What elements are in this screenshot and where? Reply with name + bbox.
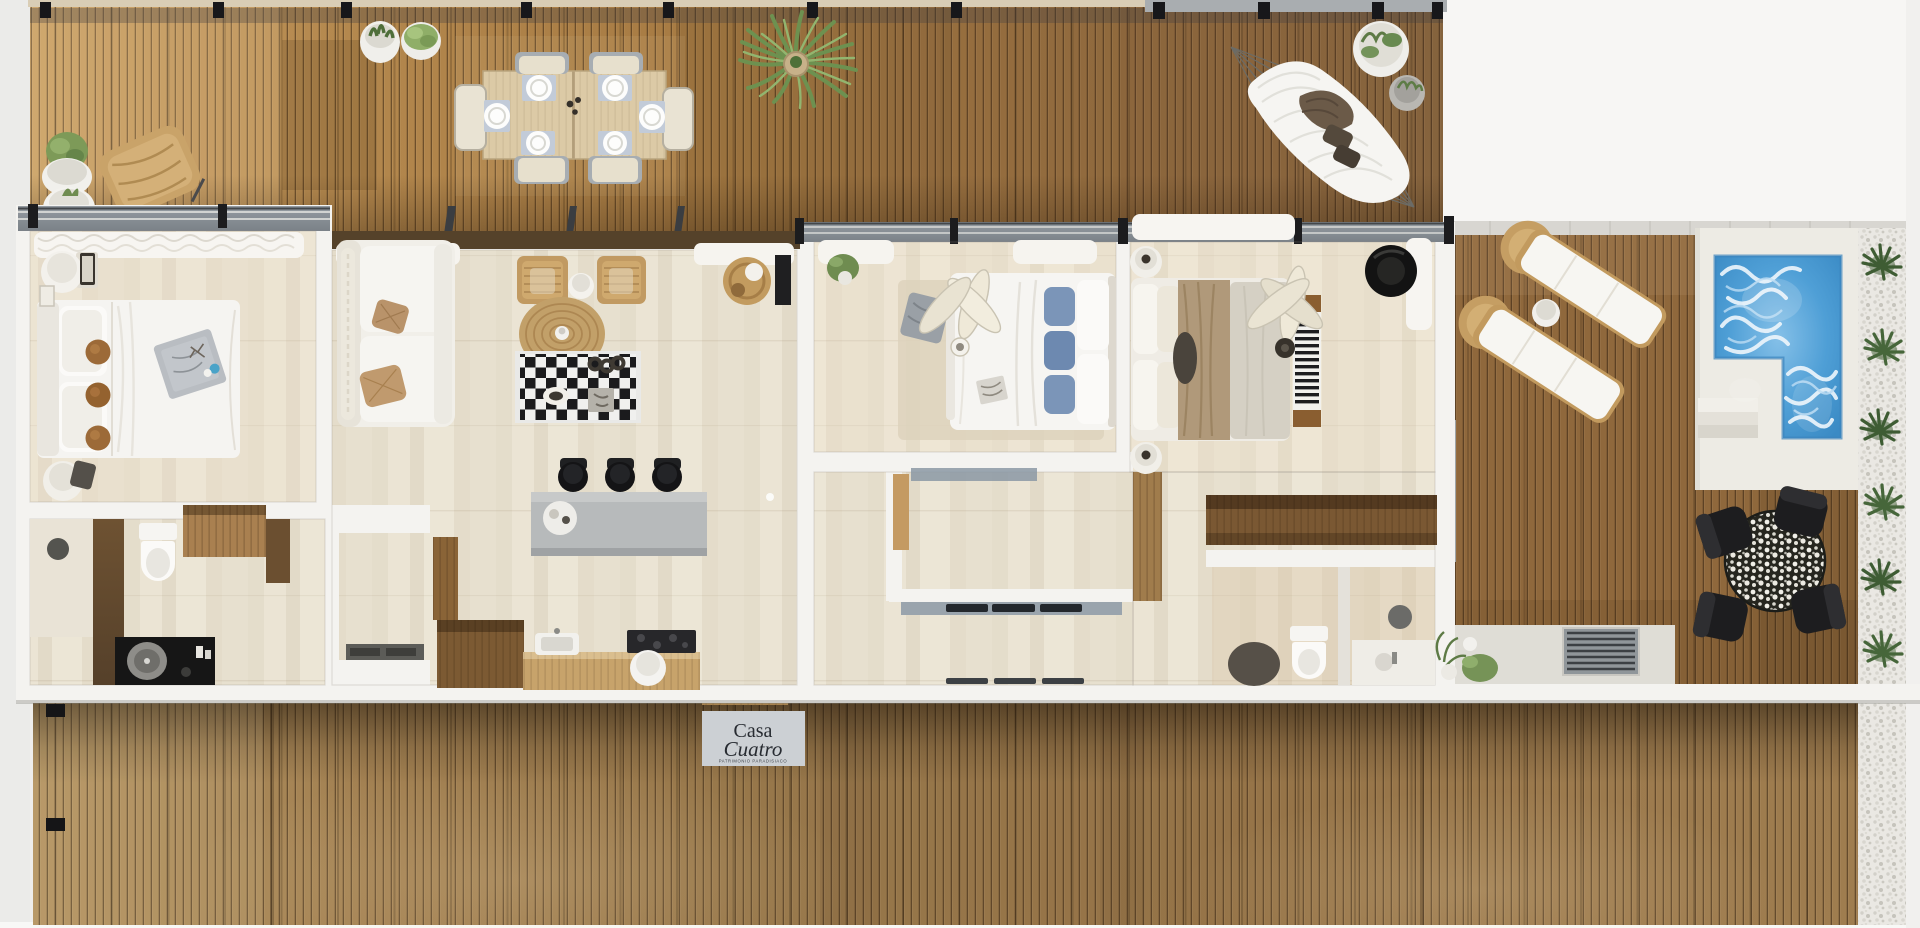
- svg-text:PATRIMONIO PARADISIACO: PATRIMONIO PARADISIACO: [719, 759, 788, 764]
- svg-text:Cuatro: Cuatro: [724, 737, 783, 761]
